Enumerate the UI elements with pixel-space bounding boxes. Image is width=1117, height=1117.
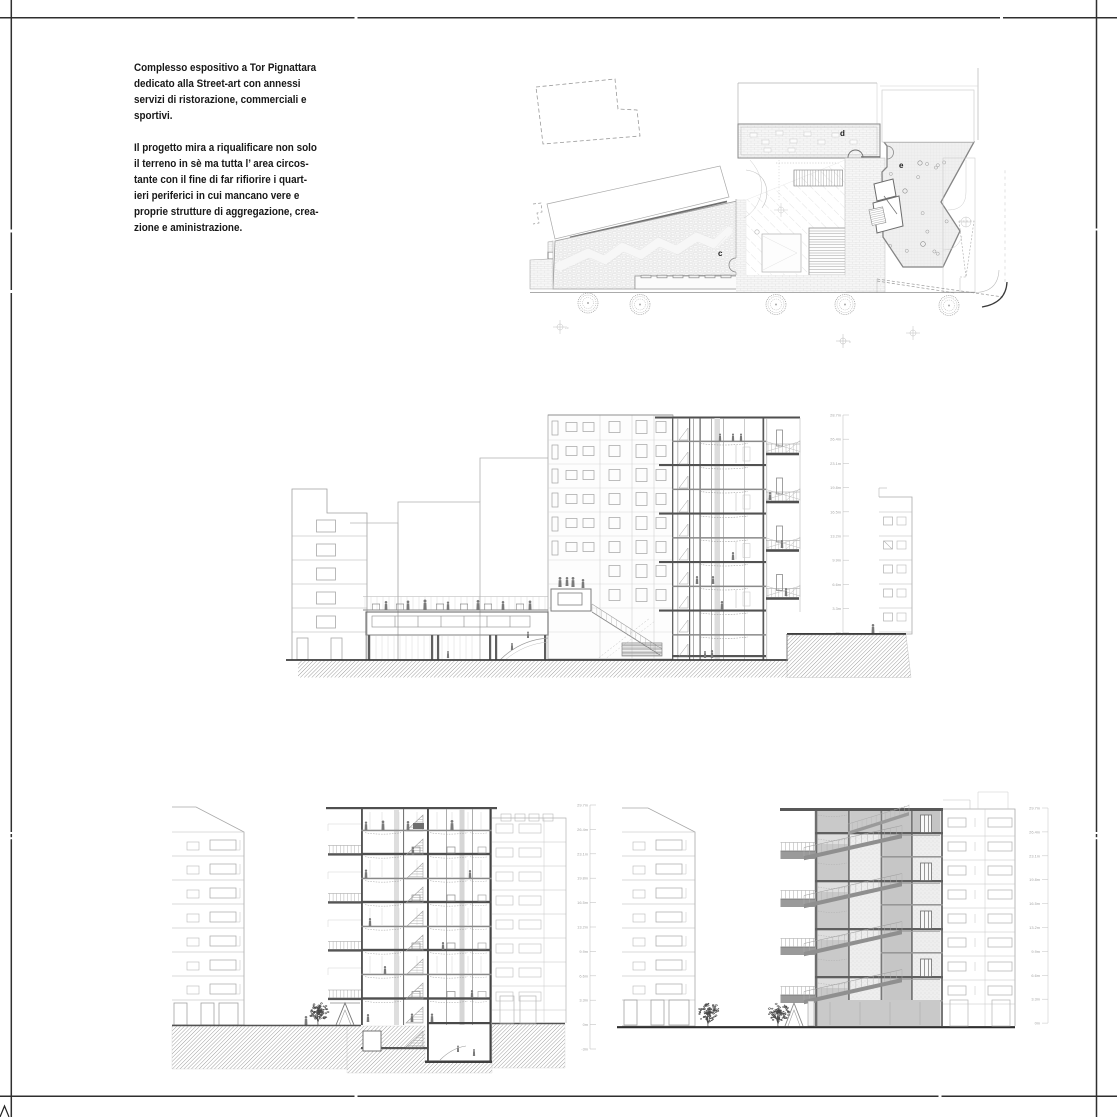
svg-text:9.9m: 9.9m [832,558,841,563]
svg-text:e: e [899,161,904,170]
svg-text:6.6m: 6.6m [1031,973,1040,978]
svg-text:0m: 0m [583,1022,588,1027]
svg-text:16.5m: 16.5m [1029,901,1040,906]
svg-text:19.8m: 19.8m [830,485,841,490]
svg-text:19.8m: 19.8m [1029,877,1040,882]
svg-text:6.6m: 6.6m [832,582,841,587]
svg-text:-3m: -3m [581,1047,588,1052]
svg-text:16.5m: 16.5m [577,900,588,905]
svg-text:d: d [840,129,845,138]
svg-text:28.7m: 28.7m [830,413,841,418]
svg-text:13.2m: 13.2m [830,534,841,539]
svg-text:9.9m: 9.9m [1031,949,1040,954]
svg-text:3.3m: 3.3m [832,606,841,611]
svg-text:29.7m: 29.7m [577,803,588,808]
svg-text:26.4m: 26.4m [1029,829,1040,834]
svg-text:23.1m: 23.1m [577,851,588,856]
svg-text:23.1m: 23.1m [830,461,841,466]
svg-text:26.4m: 26.4m [830,437,841,442]
svg-text:3.3m: 3.3m [1031,997,1040,1002]
svg-text:13.2m: 13.2m [577,925,588,930]
svg-text:3.3m: 3.3m [579,998,588,1003]
svg-text:9.9m: 9.9m [579,949,588,954]
svg-text:16.5m: 16.5m [830,509,841,514]
svg-text:0: 0 [849,340,851,344]
svg-text:6.6m: 6.6m [579,973,588,978]
svg-text:23.1m: 23.1m [1029,853,1040,858]
svg-text:c: c [718,249,723,258]
svg-text:13.2m: 13.2m [1029,925,1040,930]
svg-text:26.4m: 26.4m [577,827,588,832]
svg-text:0m: 0m [1035,1021,1040,1026]
svg-text:19.8m: 19.8m [577,876,588,881]
svg-text:29.7m: 29.7m [1029,806,1040,811]
svg-text:+0: +0 [565,326,569,330]
